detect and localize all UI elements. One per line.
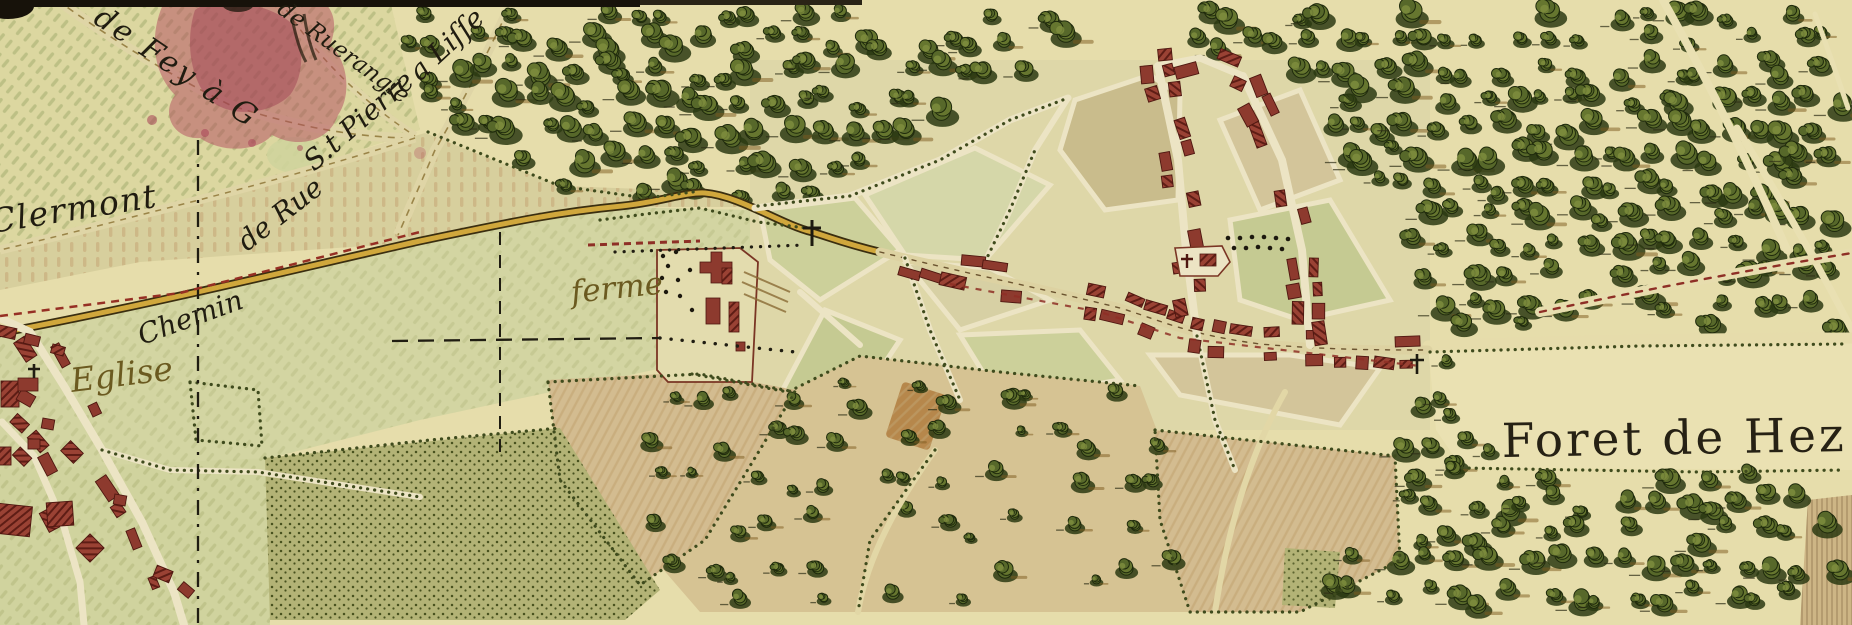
village-building bbox=[41, 418, 55, 430]
village-building bbox=[1313, 282, 1322, 296]
village-building bbox=[1306, 354, 1323, 366]
village-building bbox=[28, 439, 40, 449]
village-building bbox=[1356, 356, 1369, 370]
village-building bbox=[1208, 346, 1224, 357]
church-village bbox=[1175, 246, 1230, 276]
village-building bbox=[1190, 317, 1204, 330]
village-building bbox=[1186, 191, 1201, 208]
village-building bbox=[1264, 327, 1280, 337]
village-building bbox=[1309, 258, 1319, 277]
village-building bbox=[1158, 48, 1173, 61]
historic-map-figure: Clermont Chemin de Rue S.t Pierre a Liſſ… bbox=[0, 0, 1852, 625]
village-building bbox=[1292, 302, 1304, 325]
village-building bbox=[1, 381, 19, 407]
village-building bbox=[1084, 307, 1097, 321]
village-building bbox=[1168, 81, 1181, 97]
village-building bbox=[1162, 63, 1175, 77]
village-building bbox=[1286, 283, 1301, 299]
village-building bbox=[1212, 320, 1226, 334]
village-building bbox=[0, 503, 32, 536]
village-building bbox=[1188, 339, 1201, 353]
village-building bbox=[46, 501, 74, 527]
label-foret-de-hez: Foret de Hez bbox=[1501, 408, 1847, 469]
village-building bbox=[1274, 190, 1287, 207]
village-building bbox=[0, 447, 11, 465]
village-building bbox=[1194, 279, 1205, 292]
village-building bbox=[1395, 336, 1420, 347]
village-building bbox=[1161, 175, 1173, 188]
village-building bbox=[113, 494, 127, 506]
village-building bbox=[1264, 352, 1276, 360]
village-building bbox=[1140, 65, 1154, 84]
village-building bbox=[1334, 357, 1345, 367]
historic-map-canvas: Clermont Chemin de Rue S.t Pierre a Liſſ… bbox=[0, 0, 1852, 625]
village-building bbox=[1312, 303, 1325, 319]
